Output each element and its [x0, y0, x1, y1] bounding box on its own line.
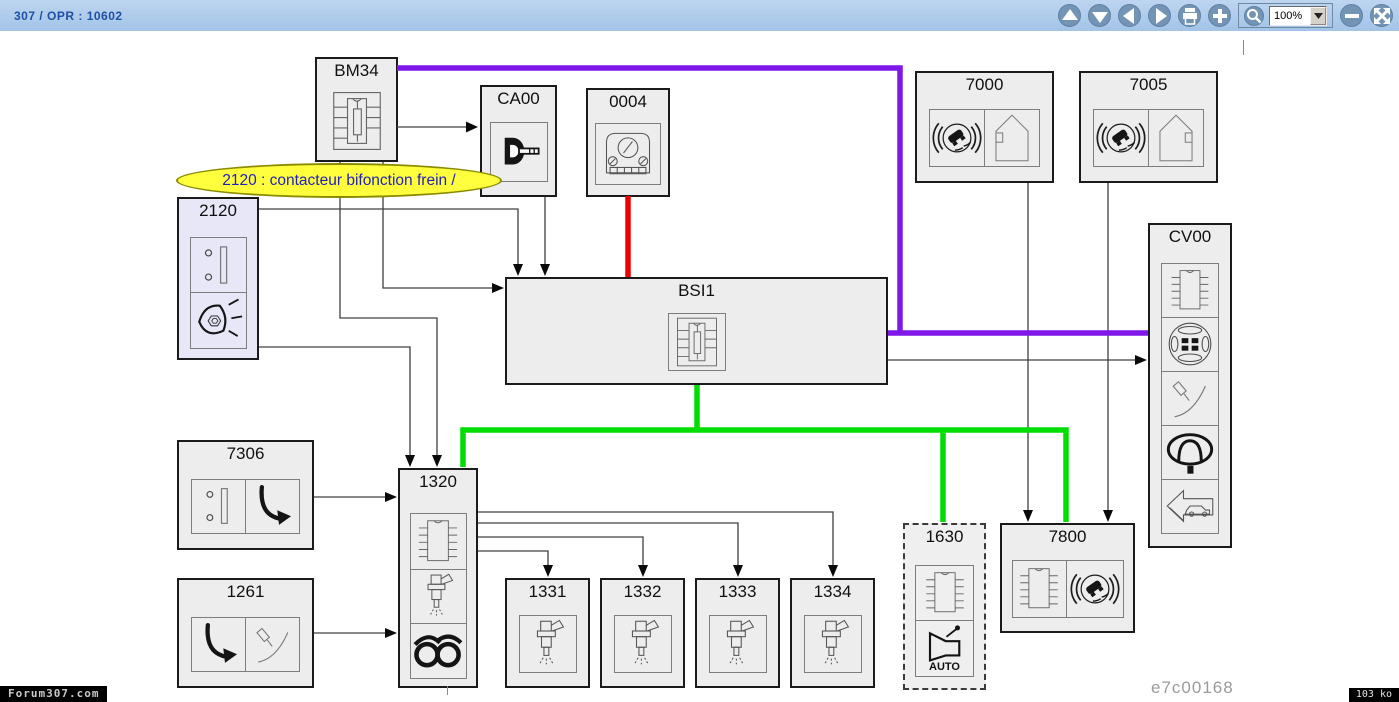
steering-wheel-icon	[1165, 319, 1215, 369]
icon-cell	[1148, 109, 1204, 167]
chevron-down-icon	[1314, 13, 1323, 19]
wiring-diagram-viewer: 307 / OPR : 10602	[0, 0, 1399, 702]
component-bsi1[interactable]: BSI1	[505, 277, 888, 385]
wheel-sensor-icon	[988, 111, 1036, 165]
car-reverse-arrow-icon	[1164, 483, 1216, 529]
icon-cell	[984, 109, 1040, 167]
wheel-sensor-icon	[1152, 111, 1200, 165]
icon-cell	[929, 109, 985, 167]
component-label: BM34	[334, 60, 378, 81]
column-stalk-icon	[250, 621, 296, 667]
injector-icon	[717, 618, 759, 670]
abs-esp-icon	[931, 112, 983, 164]
component-label: 1630	[926, 526, 964, 547]
zoom-tool-button[interactable]	[1244, 6, 1264, 26]
brake-lamp-icon	[193, 295, 243, 345]
icon-cell: AUTO	[915, 620, 974, 677]
icon-cell	[1161, 263, 1219, 318]
component-bm34[interactable]: BM34	[315, 57, 398, 162]
component-label: CV00	[1169, 226, 1212, 247]
instrument-cluster-icon	[599, 128, 657, 180]
icon-cell	[519, 615, 577, 673]
icon-cell	[614, 615, 672, 673]
icon-cell	[1161, 371, 1219, 426]
brake-switch-icon	[197, 240, 239, 290]
abs-esp-icon	[1069, 563, 1121, 615]
icon-cell	[191, 479, 246, 534]
injector-icon	[812, 618, 854, 670]
pan-left-button[interactable]	[1118, 4, 1141, 27]
arrow-left-icon	[1119, 5, 1140, 27]
component-7000[interactable]: 7000	[915, 71, 1054, 183]
auto-gearbox-icon	[921, 624, 969, 664]
component-0004[interactable]: 0004	[586, 88, 670, 197]
pan-right-button[interactable]	[1148, 4, 1171, 27]
component-label: 1334	[814, 581, 852, 602]
component-label: 0004	[609, 91, 647, 112]
icon-cell	[245, 617, 300, 672]
arrow-right-icon	[1149, 5, 1170, 27]
zoom-in-button[interactable]	[1208, 4, 1231, 27]
pedal-icon	[196, 620, 242, 668]
column-stalk-icon	[1166, 374, 1214, 422]
icon-cell	[410, 569, 467, 624]
injector-icon	[622, 618, 664, 670]
print-button[interactable]	[1178, 4, 1201, 27]
component-2120[interactable]: 2120	[177, 197, 259, 360]
fuse-box-icon	[674, 316, 720, 368]
component-label: 1332	[624, 581, 662, 602]
ecu-chip-icon	[413, 516, 463, 567]
zoom-out-button[interactable]	[1340, 4, 1363, 27]
icon-cell	[1012, 560, 1067, 618]
fuse-box-icon	[331, 90, 383, 152]
icon-cell	[1161, 479, 1219, 534]
breadcrumb: 307 / OPR : 10602	[14, 9, 123, 23]
component-label: BSI1	[678, 280, 715, 301]
icon-cell	[595, 123, 661, 185]
component-1630[interactable]: 1630 AUTO	[903, 523, 986, 690]
toolbar-buttons: 100%	[1058, 0, 1393, 31]
icon-cell	[1093, 109, 1149, 167]
switch-icon	[198, 482, 240, 530]
toolbar: 307 / OPR : 10602	[0, 0, 1399, 31]
magnifier-icon	[1245, 7, 1263, 25]
component-1331[interactable]: 1331	[505, 578, 590, 688]
minus-icon	[1341, 5, 1362, 27]
component-tooltip: 2120 : contacteur bifonction frein /	[176, 163, 502, 198]
component-1333[interactable]: 1333	[695, 578, 780, 688]
component-label: 1261	[227, 581, 265, 602]
component-7005[interactable]: 7005	[1079, 71, 1218, 183]
injector-icon	[527, 618, 569, 670]
component-1320[interactable]: 1320	[398, 468, 478, 688]
icon-cell	[1066, 560, 1124, 618]
component-label: 7000	[966, 74, 1004, 95]
fit-to-screen-button[interactable]	[1370, 4, 1393, 27]
icon-cell	[190, 237, 247, 293]
tooltip-text: 2120 : contacteur bifonction frein /	[222, 172, 456, 190]
figure-code: e7c00168	[1151, 678, 1234, 698]
component-label: 1320	[419, 471, 457, 492]
ignition-coil-icon	[412, 629, 464, 673]
component-1332[interactable]: 1332	[600, 578, 685, 688]
injector-icon	[418, 572, 458, 621]
ignition-key-icon	[494, 127, 544, 177]
ecu-chip-icon	[1166, 266, 1214, 315]
component-label: 7306	[227, 443, 265, 464]
component-label: 1331	[529, 581, 567, 602]
zoom-controls: 100%	[1238, 3, 1333, 28]
component-7800[interactable]: 7800	[1000, 523, 1135, 633]
pan-down-button[interactable]	[1088, 4, 1111, 27]
component-label: 1333	[719, 581, 757, 602]
auto-gearbox-label: AUTO	[929, 662, 960, 673]
icon-cell	[804, 615, 862, 673]
component-label: CA00	[497, 88, 540, 109]
icon-cell	[410, 623, 467, 679]
component-label: 7800	[1049, 526, 1087, 547]
plus-icon	[1209, 5, 1230, 27]
component-1334[interactable]: 1334	[790, 578, 875, 688]
icon-cell	[668, 313, 726, 371]
arrow-up-icon	[1059, 5, 1080, 27]
printer-icon	[1179, 5, 1200, 27]
expand-icon	[1371, 5, 1392, 27]
arrow-down-icon	[1089, 5, 1110, 27]
icon-cell	[490, 122, 548, 182]
component-label: 7005	[1130, 74, 1168, 95]
component-7306[interactable]: 7306	[177, 440, 314, 550]
scroll-tick-bottom	[447, 686, 448, 695]
pedal-icon	[250, 482, 296, 530]
icon-cell	[1161, 425, 1219, 480]
icon-cell	[410, 513, 467, 570]
dropdown-button[interactable]	[1310, 7, 1326, 25]
icon-cell	[1161, 317, 1219, 372]
ecu-chip-icon	[1015, 564, 1063, 614]
icon-cell	[191, 617, 246, 672]
file-size-badge: 103 ko	[1349, 688, 1399, 702]
icon-cell	[190, 292, 247, 349]
icon-cell	[915, 565, 974, 621]
ecu-chip-icon	[920, 568, 970, 618]
scroll-tick-top	[1243, 40, 1244, 55]
icon-cell	[245, 479, 300, 534]
component-1261[interactable]: 1261	[177, 578, 314, 688]
watermark: Forum307.com	[0, 686, 107, 702]
zoom-level-select[interactable]: 100%	[1269, 6, 1327, 26]
horn-pad-icon	[1164, 429, 1216, 475]
component-label: 2120	[199, 200, 237, 221]
icon-cell	[709, 615, 767, 673]
zoom-level-value: 100%	[1270, 10, 1310, 22]
green-wire	[463, 385, 1066, 522]
component-cv00[interactable]: CV00	[1148, 223, 1232, 548]
abs-esp-icon	[1095, 112, 1147, 164]
pan-up-button[interactable]	[1058, 4, 1081, 27]
